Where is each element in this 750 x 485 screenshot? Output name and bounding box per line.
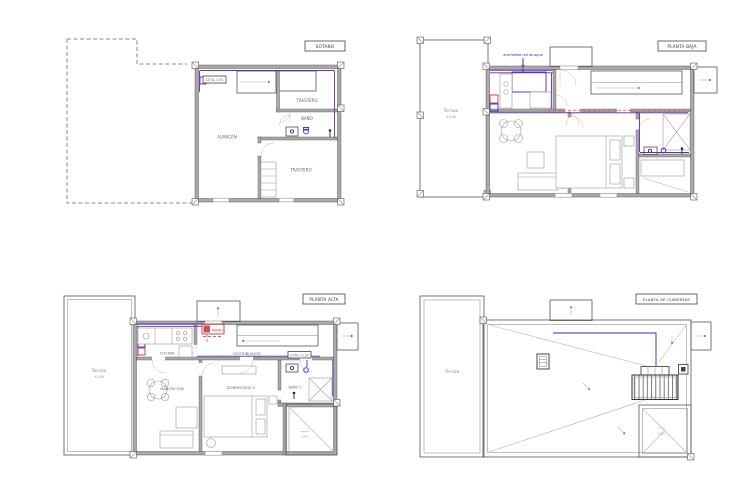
interior-wall xyxy=(199,376,202,452)
door-arc xyxy=(240,360,253,373)
room-label-distribuidor: DISTRIBUIDOR xyxy=(233,351,261,356)
plot-boundary-dashed xyxy=(67,39,194,203)
door-arc xyxy=(639,119,650,130)
drawing-sheet: COTA -2.50 TRASTERO BAÑO ALMACÉN TRASTER… xyxy=(0,0,750,485)
terrace-label: Terraza xyxy=(444,369,460,374)
interior-wall xyxy=(278,400,281,403)
slope-arrow xyxy=(583,383,590,390)
chimney-vent xyxy=(537,354,549,369)
ramp-line xyxy=(643,178,688,192)
door-arc xyxy=(571,116,583,128)
water-heater-icon xyxy=(490,95,498,111)
terrace: Terraza +2.50 xyxy=(64,296,135,455)
stairs-icon xyxy=(237,325,318,346)
interior-wall xyxy=(553,70,556,113)
terrace-label: Terraza xyxy=(443,108,459,113)
room-label-trastero1: TRASTERO xyxy=(295,98,317,103)
plan-sotano: COTA -2.50 TRASTERO BAÑO ALMACÉN TRASTER… xyxy=(67,39,345,205)
plan-planta-alta: Terraza +2.50 xyxy=(64,294,358,458)
plan-cubiertas: Terraza xyxy=(420,294,711,460)
lower-roof: 1.5% xyxy=(286,404,337,455)
slope-label: 1.5% xyxy=(657,432,665,436)
interior-wall xyxy=(194,325,197,345)
terrace-level: ±0.00 xyxy=(446,115,456,119)
level-tag: COTA +2.50 xyxy=(288,352,311,359)
door-arc xyxy=(280,112,290,122)
slope-label: 1.5% xyxy=(301,435,309,439)
bed xyxy=(556,136,634,188)
kitchen-counter xyxy=(500,74,551,108)
room-label-cocina: COCINA xyxy=(160,351,175,356)
plan-title: PLANTA DE CUBIERTAS xyxy=(643,297,690,302)
door-arc xyxy=(202,363,215,376)
bathroom-fixtures xyxy=(286,127,331,137)
interior-wall xyxy=(199,360,202,363)
title-block-cubiertas: PLANTA DE CUBIERTAS xyxy=(636,294,697,304)
bed xyxy=(204,396,277,448)
pipe-to-solar-panel xyxy=(553,333,656,366)
shelving xyxy=(261,162,276,197)
interior-wall xyxy=(258,137,338,140)
water-heater-tag: TERMO xyxy=(202,324,224,344)
cota-label: COTA +2.50 xyxy=(290,353,309,357)
room-label-bano: BAÑO xyxy=(301,116,313,121)
bathroom2 xyxy=(286,364,332,401)
door-arc xyxy=(560,70,576,86)
interior-wall xyxy=(258,156,261,199)
exterior-steps xyxy=(641,160,684,176)
interior-wall xyxy=(278,403,337,407)
door-arc xyxy=(261,143,274,156)
room-label-bano2: BAÑO 2 xyxy=(288,385,301,390)
slope-arrow xyxy=(618,427,625,434)
terrace-level: +2.50 xyxy=(94,375,104,379)
interior-wall xyxy=(277,109,338,112)
side-platform xyxy=(694,67,717,93)
rooftop-drain-box xyxy=(679,365,689,375)
interior-wall xyxy=(258,137,261,143)
bathroom xyxy=(644,114,690,155)
floor-plans-drawing: COTA -2.50 TRASTERO BAÑO ALMACÉN TRASTER… xyxy=(0,0,750,485)
water-supply-annotation: acometida red de agua xyxy=(503,53,542,68)
room-label-trastero2: TRASTERO xyxy=(289,168,311,173)
solar-panel xyxy=(632,367,678,400)
door-arc xyxy=(152,360,165,373)
room-label-almacen: ALMACÉN xyxy=(217,135,236,140)
plan-title: PLANTA BAJA xyxy=(667,44,696,49)
plan-planta-baja: Terraza ±0.00 xyxy=(417,37,717,200)
person-symbol xyxy=(329,129,332,132)
level-tag: COTA -2.50 xyxy=(203,76,226,83)
interior-wall xyxy=(277,71,280,112)
title-block-planta-baja: PLANTA BAJA xyxy=(658,41,706,51)
side-platform xyxy=(691,322,711,350)
entry-porch xyxy=(550,47,592,67)
stairs-icon xyxy=(591,71,682,94)
terrace-label: Terraza xyxy=(91,368,107,373)
title-block-planta-alta: PLANTA ALTA xyxy=(303,294,345,304)
room-label-habitacion: HABITACIÓN xyxy=(160,386,183,391)
annotation-text: acometida red de agua xyxy=(503,53,542,57)
interior-wall xyxy=(636,130,639,194)
double-door-arc xyxy=(565,112,580,126)
title-block-sotano: SOTANO xyxy=(305,41,345,51)
interior-wall xyxy=(278,360,281,390)
plan-title: PLANTA ALTA xyxy=(309,297,338,302)
plan-title: SOTANO xyxy=(316,44,335,49)
terrace: Terraza xyxy=(420,296,484,457)
cota-label: COTA -2.50 xyxy=(206,78,224,82)
equipment-label: TERMO xyxy=(210,328,223,332)
room-label-dormitorio2: DORMITORIO 2 xyxy=(227,385,256,390)
door-arc xyxy=(556,95,567,106)
door-arc xyxy=(300,360,312,372)
lower-roof: 1.5% xyxy=(639,405,691,457)
door-arc xyxy=(280,115,290,125)
side-platform xyxy=(337,323,358,350)
entry-porch xyxy=(197,301,240,322)
